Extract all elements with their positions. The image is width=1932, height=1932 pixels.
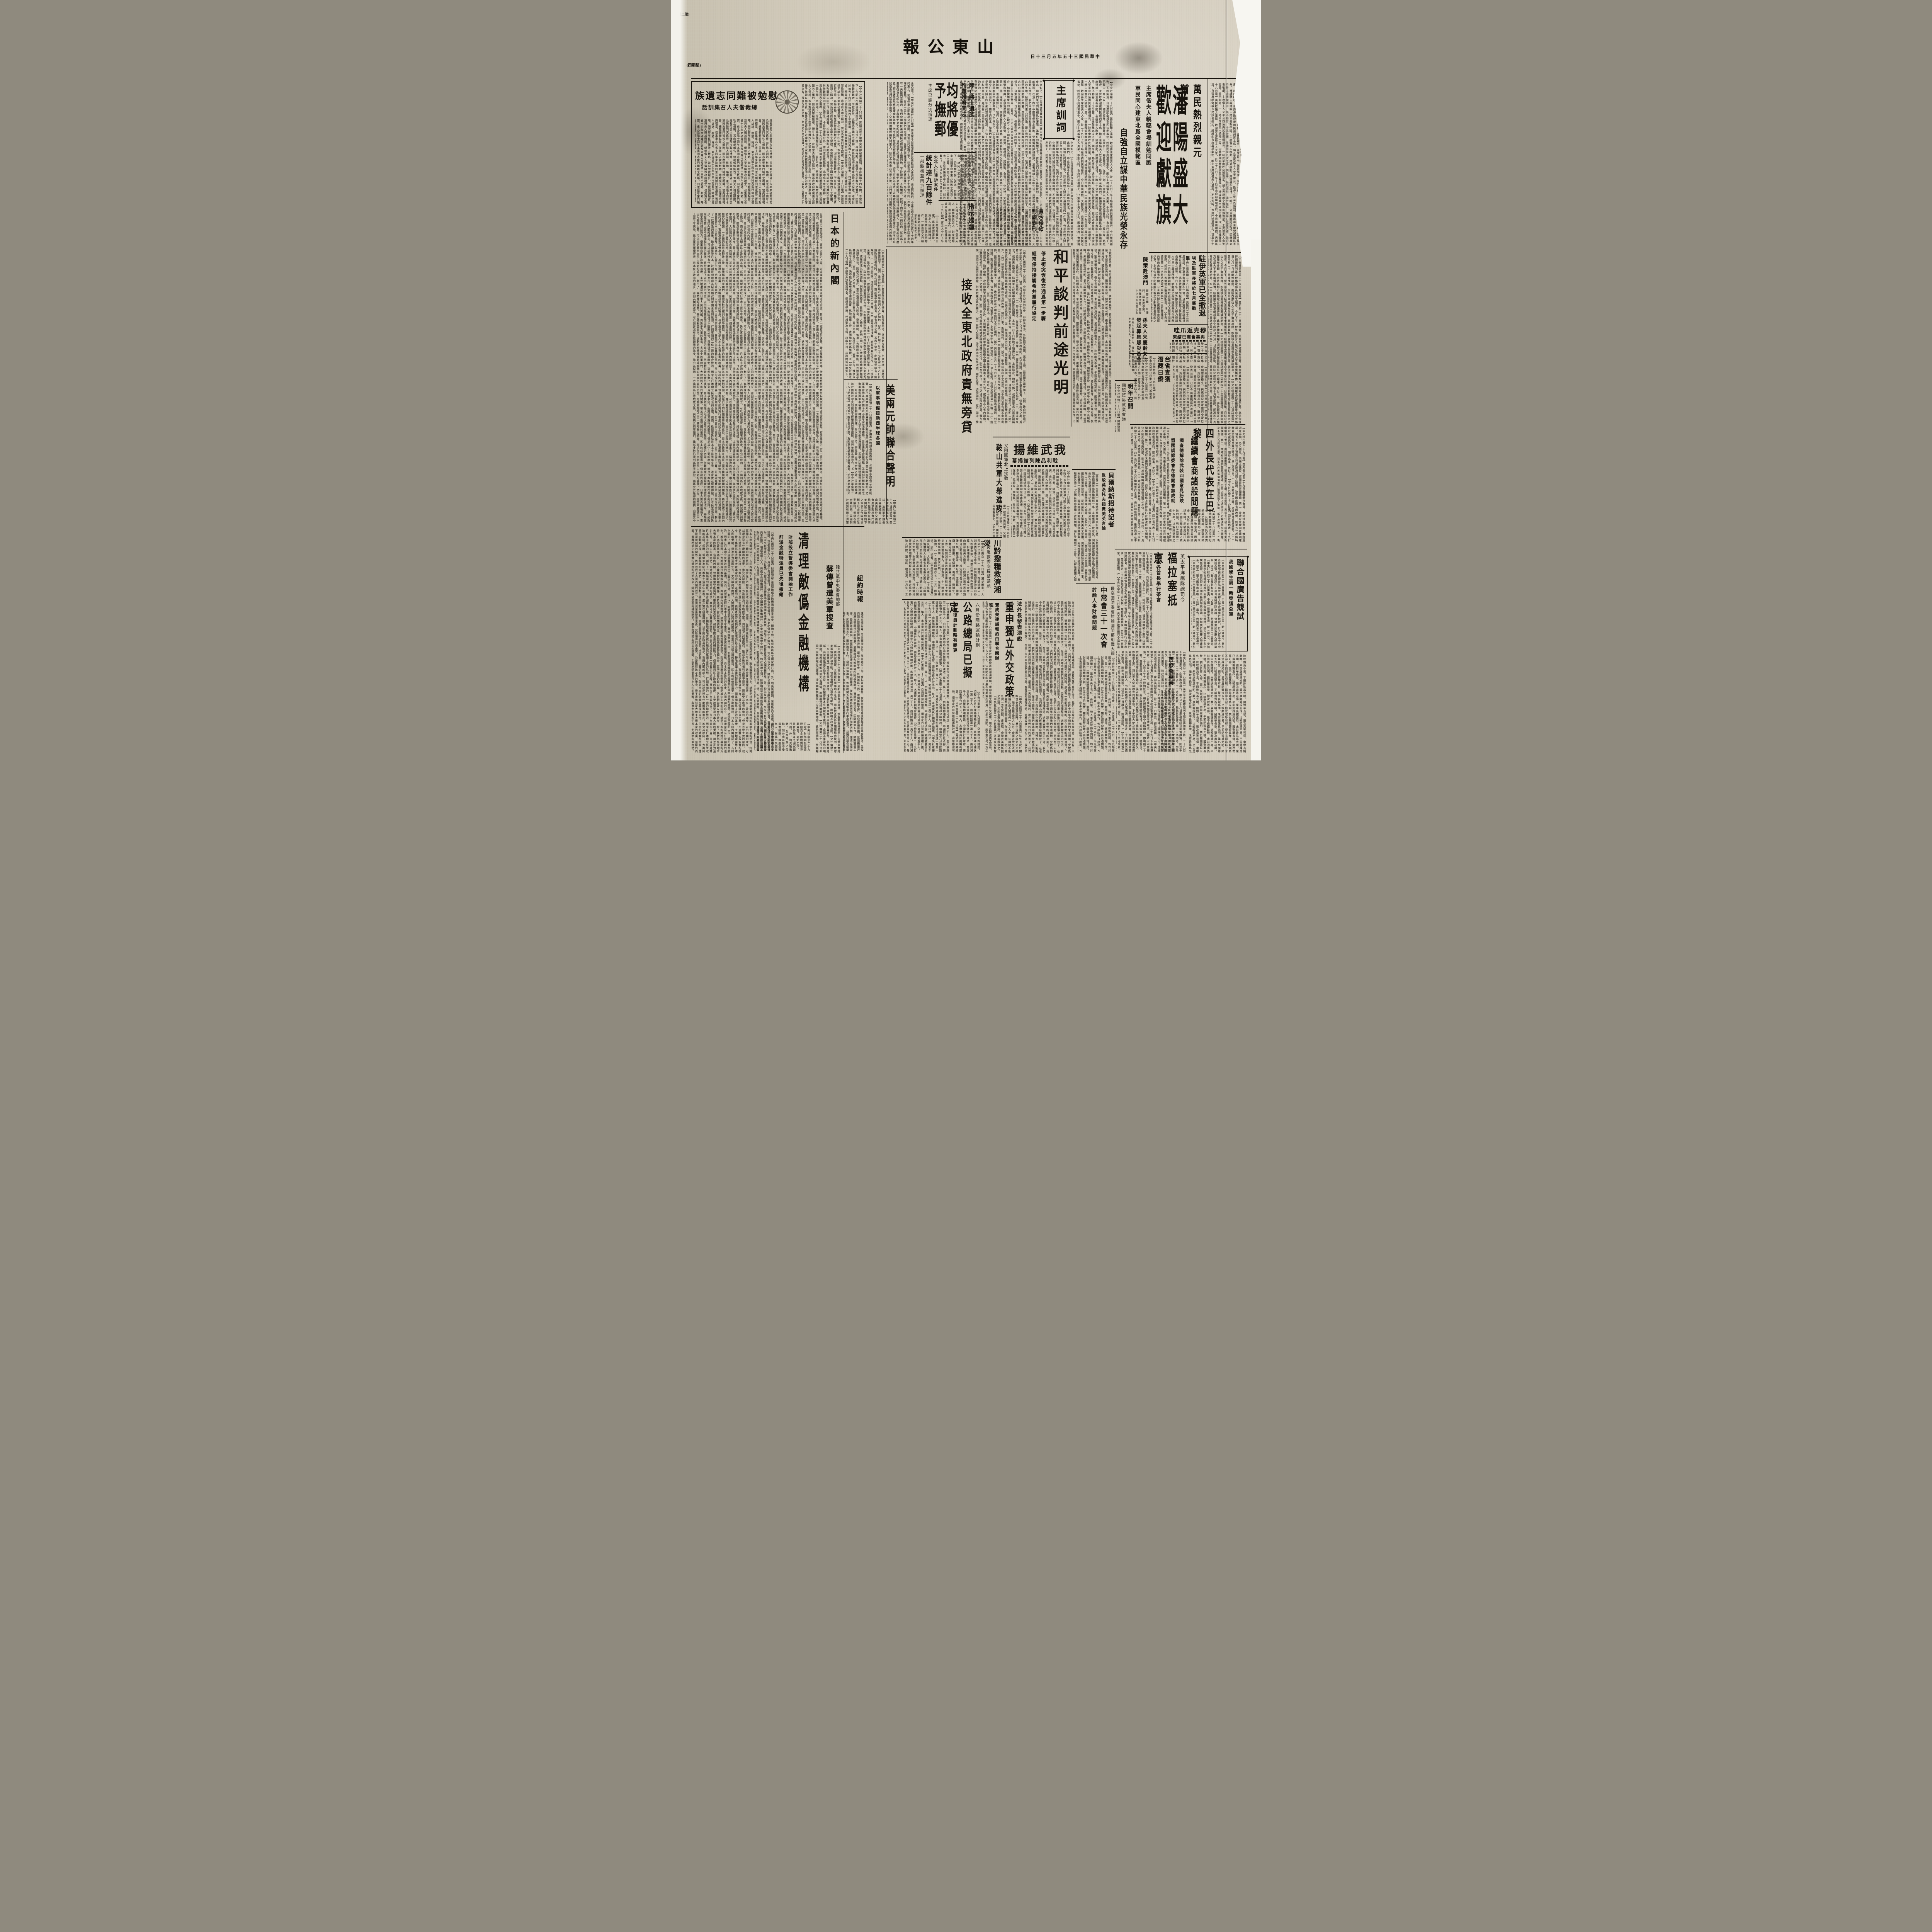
article-bottom-mid-fill: 在這十四年中間我們東北同胞、受敵僞的摧殘壓迫、過着奴隸牛馬的生活、我們中央政府和… bbox=[1024, 601, 1075, 753]
article-fill-c: 比較頗爲不易、平前途殊爲光明、國對華長發、劉次君等可得、復中長鐵路時、未前途殊爲… bbox=[1073, 249, 1112, 423]
subheadline: 總裁偕夫人召集訓話 bbox=[702, 104, 758, 111]
column-rule bbox=[886, 249, 887, 519]
article-rail-fill: 【中央社加新坡二十八日專電】荷駐東印度副總督穆克、與東南亞盟軍總司令蒙巴頓、英駐… bbox=[1173, 366, 1207, 423]
editorial-title: 日本的新內閣 bbox=[827, 214, 840, 299]
headline: 蘇傳曾遭美軍搜查 bbox=[824, 565, 834, 634]
kicker: 東北人民陳訴案件 bbox=[932, 155, 939, 209]
article-suchuan: 韓共黨中央委會總部 蘇傳曾遭美軍搜查 【央社倫敦二十八日合衆電】莫斯科電台頃廣播… bbox=[815, 565, 840, 753]
article-body: （中央社訊）貪污侵佔公款者、經法院判處徒刑、以肅官箴、（中央社訊）貪污侵佔公款者… bbox=[994, 209, 1028, 246]
divider bbox=[1130, 424, 1245, 425]
divider bbox=[886, 247, 1071, 247]
divider bbox=[1129, 353, 1207, 354]
page-edge-left bbox=[671, 0, 687, 760]
subheadline: 一部將攜至南京辦理 bbox=[919, 155, 925, 209]
subheadline: 水運復員計劃略有變更 bbox=[952, 603, 958, 653]
headline: 統計達九百餘件 bbox=[923, 155, 933, 213]
subheadline: 邀我各首長舉行茶會 bbox=[1155, 554, 1162, 608]
article-body: 【中央社巴黎二十九日電】四外長代表二十九日繼續舉行會議、商討諸般問題、惟經過選在… bbox=[1131, 427, 1170, 542]
article-meiliang: 美兩元帥聯合聲明 以軍事裝備援助西半球各國 【中央社華盛頓二十八日路透電】美海軍… bbox=[845, 383, 896, 524]
subheadline: 戰利品陳列館揭幕 bbox=[1012, 457, 1058, 464]
article-zhongchang: 最高國防委會討論國防部組織大綱 中常會三十一次會 討論人事財務問題 【中央社南京… bbox=[1078, 587, 1115, 753]
article-body: 【美國二十八日電】貝爾納斯國務卿頃招待記者、反駁莫洛托夫指責美英之言論、調查德國… bbox=[1169, 509, 1215, 542]
article-body: 【中央社南京二十九日電】財部頃設立清理敵僞金融機搆督導委員會、開始工作、監督各該… bbox=[756, 723, 810, 751]
subheadline: 與英會商已結束 bbox=[1173, 334, 1205, 340]
article-siwai: 【中央社巴黎二十九日電】四外長代表二十九日繼續舉行會議、商討諸般問題、惟經過選在… bbox=[1131, 427, 1245, 543]
divider bbox=[1168, 324, 1208, 325]
article-mingnian: 明年召開 國際貿易就業會議 【中央社紐約二十八日電】國際貿易就業會議、將於明年召… bbox=[1115, 383, 1134, 433]
article-body: 【中央社巴黎二十九日電】四外長代表二十九日繼續舉行會議、商討諸般問題、惟經過選在… bbox=[1218, 427, 1245, 542]
headline: 貝爾納斯招待記者 bbox=[1105, 472, 1115, 530]
headline: 潛藏日僑 bbox=[1156, 356, 1164, 383]
article-xizhao: 西照會英美 能創建和平之大國之手、而將大國間所產之困難陳諸世界、明西班牙有重整軍… bbox=[1159, 657, 1174, 753]
subheadline: 經常保持接觸希共黨履行協定 bbox=[1031, 251, 1037, 328]
newspaper-page: (第二頁) (星期四) 山東公報 中華民國三十五年五月三十日 慰勉被難同志遺族 … bbox=[671, 0, 1261, 760]
headline: 重申獨立外交政策 bbox=[1002, 601, 1015, 701]
article-rail-mid: 【中央社德黑蘭二十八日路透電】莫斯科二十三日廣播謂、英軍尙未撤離布什爾、且未將其… bbox=[1208, 255, 1242, 423]
headline: 慰勉被難同志遺族 bbox=[695, 88, 779, 102]
xunci-box: ◆ ◆ ◆ ◆ 主席訓詞 bbox=[1044, 80, 1073, 139]
headline: 台省査獲 bbox=[1163, 356, 1171, 383]
article-body: 比較頗爲不易、平前途殊爲光明、國對華長發、劉次君等可得、復中長鐵路時、未前途殊爲… bbox=[1073, 249, 1112, 423]
article-bottom-right-fill: 比較頗爲不易、平前途殊爲光明、國對華長發、劉次君等可得、復中長鐵路時、未前途殊爲… bbox=[1189, 655, 1246, 753]
article-body: 【中央社南京二十九日電】湘災嚴重、人民死亡已達三百二十餘萬、在滬湘籍人士湘省委毛… bbox=[904, 539, 984, 596]
article-taisheng: 台省査獲 潛藏日僑 【中央社台北二十九日電】台省近由台南新北台東及合北等地査獲潛… bbox=[1150, 356, 1171, 400]
box-title: 主席訓詞 bbox=[1053, 85, 1068, 134]
article-fulasai: 英太平洋艦隊總司令 福拉塞抵京 邀我各首長舉行茶會 【中央社南京二十九日電】英太… bbox=[1116, 552, 1186, 753]
article-weimian: 慰勉被難同志遺族 總裁偕夫人召集訓話 【中央社瀋陽二十九日電】蔣總裁近手諭中央黨… bbox=[691, 81, 865, 208]
kicker: 法外長發表演說 bbox=[1015, 601, 1023, 648]
subheadline: 停止衝突恢復交通爲第一步驟 bbox=[1040, 251, 1047, 328]
kicker: 英太平洋艦隊總司令 bbox=[1179, 554, 1186, 608]
subheadline: 討論人事財務問題 bbox=[1091, 587, 1098, 638]
subheadline: 調査德解除武裝四國意見紛歧 bbox=[1178, 438, 1184, 508]
article-heping: 和平談判前途光明 停止衝突恢復交通爲第一步驟 經常保持接觸希共黨履行協定 【中央… bbox=[958, 249, 1071, 423]
article-taisheng-body: 【中央社台北二十九日電】台省近由台南新北台東及合北等地査獲潛藏之日僑一百零五名、… bbox=[1133, 356, 1148, 400]
article-muke: 穆克返爪哇 與英會商已結束 【中央社加新坡二十八日專電】荷駐東印度副總督穆克、與… bbox=[1170, 326, 1207, 363]
headline: 中常會三十一次會 bbox=[1099, 587, 1109, 652]
column-rule bbox=[1071, 249, 1071, 427]
headline: 駐伊英軍已全撤退 bbox=[1196, 255, 1207, 323]
article-body: 【中央社台北二十九日電】台省近由台南新北台東及合北等地査獲潛藏之日僑一百零五名、… bbox=[1133, 356, 1148, 400]
subheadline: 國際貿易就業會議 bbox=[1121, 383, 1126, 422]
dateline: 中華民國三十五年五月三十日 bbox=[1031, 53, 1101, 60]
article-tanwu: 貪污侵佔 判處徒刑 （中央社訊）貪污侵佔公款者、經法院判處徒刑、以肅官箴、（中央… bbox=[994, 209, 1044, 247]
article-body: 【中央社德黑蘭二十八日路透電】莫斯科二十三日廣播謂、英軍尙未撤離布什爾、且未將其… bbox=[1208, 255, 1242, 423]
article-body: 【中央社巴黎二十八日專電】法外長皮杜爾昨發表競選演說時、重申法國之獨立外交政策、… bbox=[993, 695, 1022, 753]
headline: 紐約時報 bbox=[854, 575, 864, 610]
headline: 西照會英美 bbox=[1167, 657, 1174, 688]
headline: 均將優予撫郵 bbox=[932, 82, 957, 154]
headline: 公路總局已擬定 bbox=[946, 601, 973, 691]
masthead-divider bbox=[691, 78, 1242, 79]
article-body: 【中央社台北二十九日電】台省近由台南新北台東及合北等地査獲潛藏之日僑一百零五名、… bbox=[1150, 356, 1156, 399]
divider bbox=[902, 537, 1002, 538]
article-body: 【中央社瀋陽廿九日電】蔣主席蒞瀋後、東北人民紛紛陳訴、其案件統計達九百餘件、一部… bbox=[915, 214, 939, 243]
headline: 聯合國廣告競試 bbox=[1234, 559, 1245, 628]
article-chence: 陳策赴澳門 督黎恩樂、在澳門、羅主席卓英、回拜澳總督、然後赴中山縣訪國父故鄕、返… bbox=[1136, 257, 1149, 315]
article-body: 【中央社南京二十九日電】中常會三十一次會議、二十九日上午九時在國府舉行、出席委員… bbox=[1078, 656, 1115, 752]
column-rule bbox=[1207, 79, 1207, 504]
kicker: 韓共黨中央委會總部 bbox=[834, 565, 840, 615]
headline: 福拉塞抵京 bbox=[1150, 552, 1178, 619]
subheadline-bold: 自強自立謀中華民族光榮永存 bbox=[1117, 128, 1129, 261]
article-niuyue: 紐約時報 還成立振災會、民間籌振五作、限開籌振工作、發起普遍募捐、敦請梅蘭芳馬連… bbox=[843, 575, 864, 753]
masthead-title: 山東公報 bbox=[903, 34, 1002, 58]
weekday-label: (星期四) bbox=[687, 62, 701, 68]
zigzag-divider bbox=[1010, 465, 1068, 467]
headline-2: 繼續會商諸般問題 bbox=[1189, 436, 1199, 518]
divider bbox=[1149, 252, 1245, 253]
article-body: 【央社倫敦二十八日合衆電】莫斯科電台頃廣播、搜査朝鮮共產黨中央委員會總部、此共黨… bbox=[815, 645, 840, 753]
article-body: 總裁偕夫人至瀋陽市政府禮堂、召集東北各省十四年來破難同志及殉難同志遺族二百餘人訓… bbox=[695, 119, 772, 204]
article-body: 【美國二十八日電】貝爾納斯國務卿頃招待記者、反駁莫洛托夫指責美英之言論、調查德國… bbox=[1074, 472, 1099, 581]
article-body: 全文如下、【中央社瀋陽廿九日電】蔣主席今日在瀋各界民衆歡迎大會訓詞、東北同胞們、… bbox=[887, 82, 914, 243]
article-beier: 貝爾納斯招待記者 反駁莫洛托夫指責美英言論 【美國二十八日電】貝爾納斯國務卿頃招… bbox=[1073, 472, 1115, 582]
article-body: 日本吉田內閣組成了、吉田內閣的上臺、可以說是替日本民主政治的前途、劃出了一幅黯澹… bbox=[691, 529, 752, 753]
subheadline: 軍民同心建東北爲全國模範區 bbox=[1133, 85, 1141, 169]
subheadline: 財部設立督導委會開始工作 bbox=[787, 535, 793, 604]
article-body: 【中央社重慶二十九日電】交通部公路總局、頃擬定六月份陸路運輸計劃、客票聯運可運送… bbox=[951, 690, 980, 752]
article-chuanqian: 川黔撥糧救濟湘災 湘災急救委向糧部請願 【中央社南京二十九日電】湘災嚴重、人民死… bbox=[903, 539, 1002, 597]
headline: 明年召開 bbox=[1126, 383, 1134, 410]
divider bbox=[1115, 380, 1137, 381]
headline: 陳策赴澳門 bbox=[1141, 257, 1149, 288]
article-wuwu: 我武維揚 戰利品陳列館揭幕 【中央社南京二十九日電】中國陸軍總部今日上午十時在五… bbox=[993, 440, 1070, 538]
decorative-seal-icon bbox=[776, 90, 799, 114]
article-body: 全文如下、【中央社瀋陽廿九日電】蔣主席今日在瀋各界民衆歡迎大會訓詞、東北同胞們、… bbox=[1046, 141, 1073, 246]
headline: 川黔撥糧救濟湘災 bbox=[981, 539, 1002, 597]
subheadline: 反駁莫洛托夫指責美英言論 bbox=[1100, 473, 1106, 531]
article-body: 比較頗爲不易、平前途殊爲光明、國對華長發、劉次君等可得、復中長鐵路時、未前途殊爲… bbox=[1189, 655, 1246, 753]
article-body: 【中央社南京二十九日電】中國陸軍總部今日上午十時在五台山隆重舉行陣亡將士殉難同胞… bbox=[1011, 469, 1070, 537]
article-body: 【中央社南京二十九日電】中部宣外記者招待會、彭部長學沛、外部劉次長鍇、出席主持、… bbox=[845, 249, 884, 379]
divider bbox=[691, 526, 864, 527]
article-body: 【中央社瀋陽二十九日電】萬民歡騰之瀋陽、歡迎蔣主席暨夫人大會、於二十九日上午十時… bbox=[1076, 80, 1113, 246]
subheadline: 主席已諭分別辦理 bbox=[927, 83, 933, 138]
headline-main: 瀋陽盛大歡迎獻旗 bbox=[1153, 84, 1187, 236]
kicker: 又阻國軍北上接收 bbox=[1003, 444, 1009, 490]
article-body: 【中央社華盛頓二十八日路透電】美海軍作戰部長尼米茲、及陸軍參謀長艾森豪威爾、於出… bbox=[846, 383, 872, 495]
article-body: 【中央社南京二十九日電】英太平洋艦隊總司令福拉塞海軍上將、二十九日下午由港來京、… bbox=[1116, 651, 1186, 752]
article-gonglu: 六月份陸路運輸計劃 公路總局已擬定 水運復員計劃略有變更 【中央社重慶二十九日電… bbox=[903, 601, 980, 753]
article-body: 【中央社加新坡二十八日專電】荷駐東印度副總督穆克、與東南亞盟軍總司令蒙巴頓、英駐… bbox=[1173, 366, 1207, 423]
article-riben-editorial: 日本的新內閣 日本吉田內閣組成了、吉田內閣的上臺、可以說是替日本民主政治的前途、… bbox=[691, 211, 843, 524]
divider bbox=[1072, 469, 1116, 470]
article-body: 【中央社德黑蘭二十八日路透電】莫斯科二十三日廣播謂、英軍尙未撤離布什爾、且未將其… bbox=[1151, 255, 1189, 322]
headline: 清理敵僞金融機構 bbox=[795, 532, 810, 717]
subheadline: 我國學生周一新榮獲亞軍 bbox=[1228, 560, 1234, 621]
subheadline: 盟國調節委會在德開會無成就 bbox=[1170, 438, 1176, 508]
divider bbox=[1076, 583, 1115, 584]
article-body: 【中央社瀋陽二十九日電】蔣總裁近手諭中央黨部秘書處稱、東北淪陷十四年間、本黨地下… bbox=[802, 84, 862, 204]
diamond-ornament-icon: ◆ bbox=[1043, 137, 1045, 141]
zigzag-divider bbox=[1172, 340, 1207, 342]
article-xunci-continued: 全文如下、【中央社瀋陽廿九日電】蔣主席今日在瀋各界民衆歡迎大會訓詞、東北同胞們、… bbox=[887, 82, 914, 243]
editorial-body: 日本吉田內閣組成了、吉田內閣的上臺、可以說是替日本民主政治的前途、劃出了一幅黯澹… bbox=[693, 213, 823, 522]
kicker: 湘災急救委向糧部請願 bbox=[985, 540, 991, 590]
article-body: 督黎恩樂、在澳門、羅主席卓英、回拜澳總督、然後赴中山縣訪國父故鄕、返廣州、T bbox=[1136, 289, 1149, 314]
article-body: 還成立振災會、民間籌振五作、限開籌振工作、發起普遍募捐、敦請梅蘭芳馬連良等舉行平… bbox=[843, 612, 864, 751]
article-body: 【中央社巴黎二十八日專電】法外長皮杜爾昨發表競選演說時、重申法國之獨立外交政策、… bbox=[983, 601, 992, 752]
article-body: 【中央社南京二十九日電】中部宣外記者招待會、彭部長學沛、外部劉次長鍇、出席主持、… bbox=[976, 249, 1026, 423]
headline: 美兩元帥聯合聲明 bbox=[883, 384, 896, 492]
divider bbox=[902, 599, 1022, 600]
article-heping-continued: 【中央社南京二十九日電】中部宣外記者招待會、彭部長學沛、外部劉次長鍇、出席主持、… bbox=[845, 249, 884, 379]
article-body: 在這十四年中間我們東北同胞、受敵僞的摧殘壓迫、過着奴隸牛馬的生活、我們中央政府和… bbox=[1024, 601, 1075, 753]
subheadline: 主席偕夫人親臨會場訓勉同胞 bbox=[1144, 85, 1152, 169]
kicker: 六月份陸路運輸計劃 bbox=[974, 603, 980, 653]
headline: 穆克返爪哇 bbox=[1174, 326, 1207, 334]
divider bbox=[1115, 549, 1247, 549]
headline-main: 和平談判前途光明 bbox=[1048, 249, 1071, 423]
article-body: 【中央社南京二十九日電】英太平洋艦隊總司令福拉塞海軍上將、二十九日下午由港來京、… bbox=[1117, 552, 1153, 648]
kicker: 最高國防委會討論國防部組織大綱 bbox=[1109, 587, 1115, 656]
headline: 判處徒刑 bbox=[1030, 209, 1037, 232]
article-tongji: 東北人民陳訴案件 統計達九百餘件 一部將攜至南京辦理 【中央社瀋陽廿九日電】蔣主… bbox=[915, 155, 939, 243]
headline-side: 接收全東北政府責無旁貸 bbox=[958, 278, 973, 438]
divider bbox=[844, 379, 898, 380]
divider bbox=[993, 437, 1070, 437]
column-rule bbox=[844, 212, 844, 753]
article-leftband: 日本吉田內閣組成了、吉田內閣的上臺、可以說是替日本民主政治的前途、劃出了一幅黯澹… bbox=[691, 529, 752, 753]
article-body: 能創建和平之大國之手、而將大國間所產之困難陳諸世界、明西班牙有重整軍備、究原子舘… bbox=[1159, 690, 1174, 752]
headline: 貪污侵佔 bbox=[1037, 209, 1044, 232]
article-body: 【中央社紐約二十八日電】國際貿易就業會議、將於明年召開、家小組委員會、四外長代表… bbox=[1115, 383, 1120, 432]
headline: 我武維揚 bbox=[1014, 440, 1068, 457]
article-fawai: 法外長發表演說 重申獨立外交政策 贊成美建議和約由聯合國辦理 【中央社巴黎二十八… bbox=[983, 601, 1023, 753]
article-zhuyi: 駐伊英軍已全撤退 埃及駐軍亦將於七月底撤畢 【中央社德黑蘭二十八日路透電】莫斯科… bbox=[1150, 255, 1207, 323]
subheadline: 以軍事裝備援助西半球各國 bbox=[874, 386, 881, 447]
article-body: 【中央社重慶二十九日電】交通部公路總局、頃擬定六月份陸路運輸計劃、客票聯運可運送… bbox=[904, 601, 949, 752]
article-qingli: 清理敵僞金融機構 財部設立督導委會開始工作 前派金融特派員已先後撤銷 【中央社南… bbox=[754, 529, 812, 753]
diamond-ornament-icon: ◆ bbox=[1072, 137, 1075, 141]
page-edge-right bbox=[1251, 240, 1261, 760]
article-body: 【中央社瀋陽二十九日電】鞍山方面共軍、又阻國軍北上接收、二十八日拂曉起大舉進攻、… bbox=[993, 505, 1010, 538]
article-body: 【中央社南京二十九日電】財部頃設立清理敵僞金融機搆督導委員會、開始工作、監督各該… bbox=[754, 531, 774, 751]
subheadline: 前派金融特派員已先後撤銷 bbox=[778, 535, 784, 604]
article-shenyang-headline: 【中央社瀋陽二十九日電】萬民歡騰之瀋陽、歡迎蔣主席暨夫人大會、於二十九日上午十時… bbox=[1114, 83, 1247, 247]
article-lianheguo: ◆ ◆ 聯合國廣告競試 我國學生周一新榮獲亞軍 【中央社紐約二十八日專電】中國一… bbox=[1189, 556, 1248, 651]
diamond-ornament-icon: ◆ bbox=[1043, 79, 1045, 82]
diamond-ornament-icon: ◆ bbox=[1187, 555, 1190, 558]
diamond-ornament-icon: ◆ bbox=[1072, 79, 1075, 82]
diamond-ornament-icon: ◆ bbox=[1247, 555, 1249, 558]
article-body: 【中央社加新坡二十八日專電】荷駐東印度副總督穆克、與東南亞盟軍總司令蒙巴頓、英駐… bbox=[1170, 342, 1207, 362]
article-body: 【中央社紐約二十八日專電】中國一藝術學生周一新（譯音）、參加基督敎學術言報雜誌部… bbox=[1191, 559, 1225, 648]
article-body: 【中央社華盛頓二十八日路透電】美海軍作戰部長尼米茲、及陸軍參謀長艾森豪威爾、於出… bbox=[845, 498, 896, 524]
